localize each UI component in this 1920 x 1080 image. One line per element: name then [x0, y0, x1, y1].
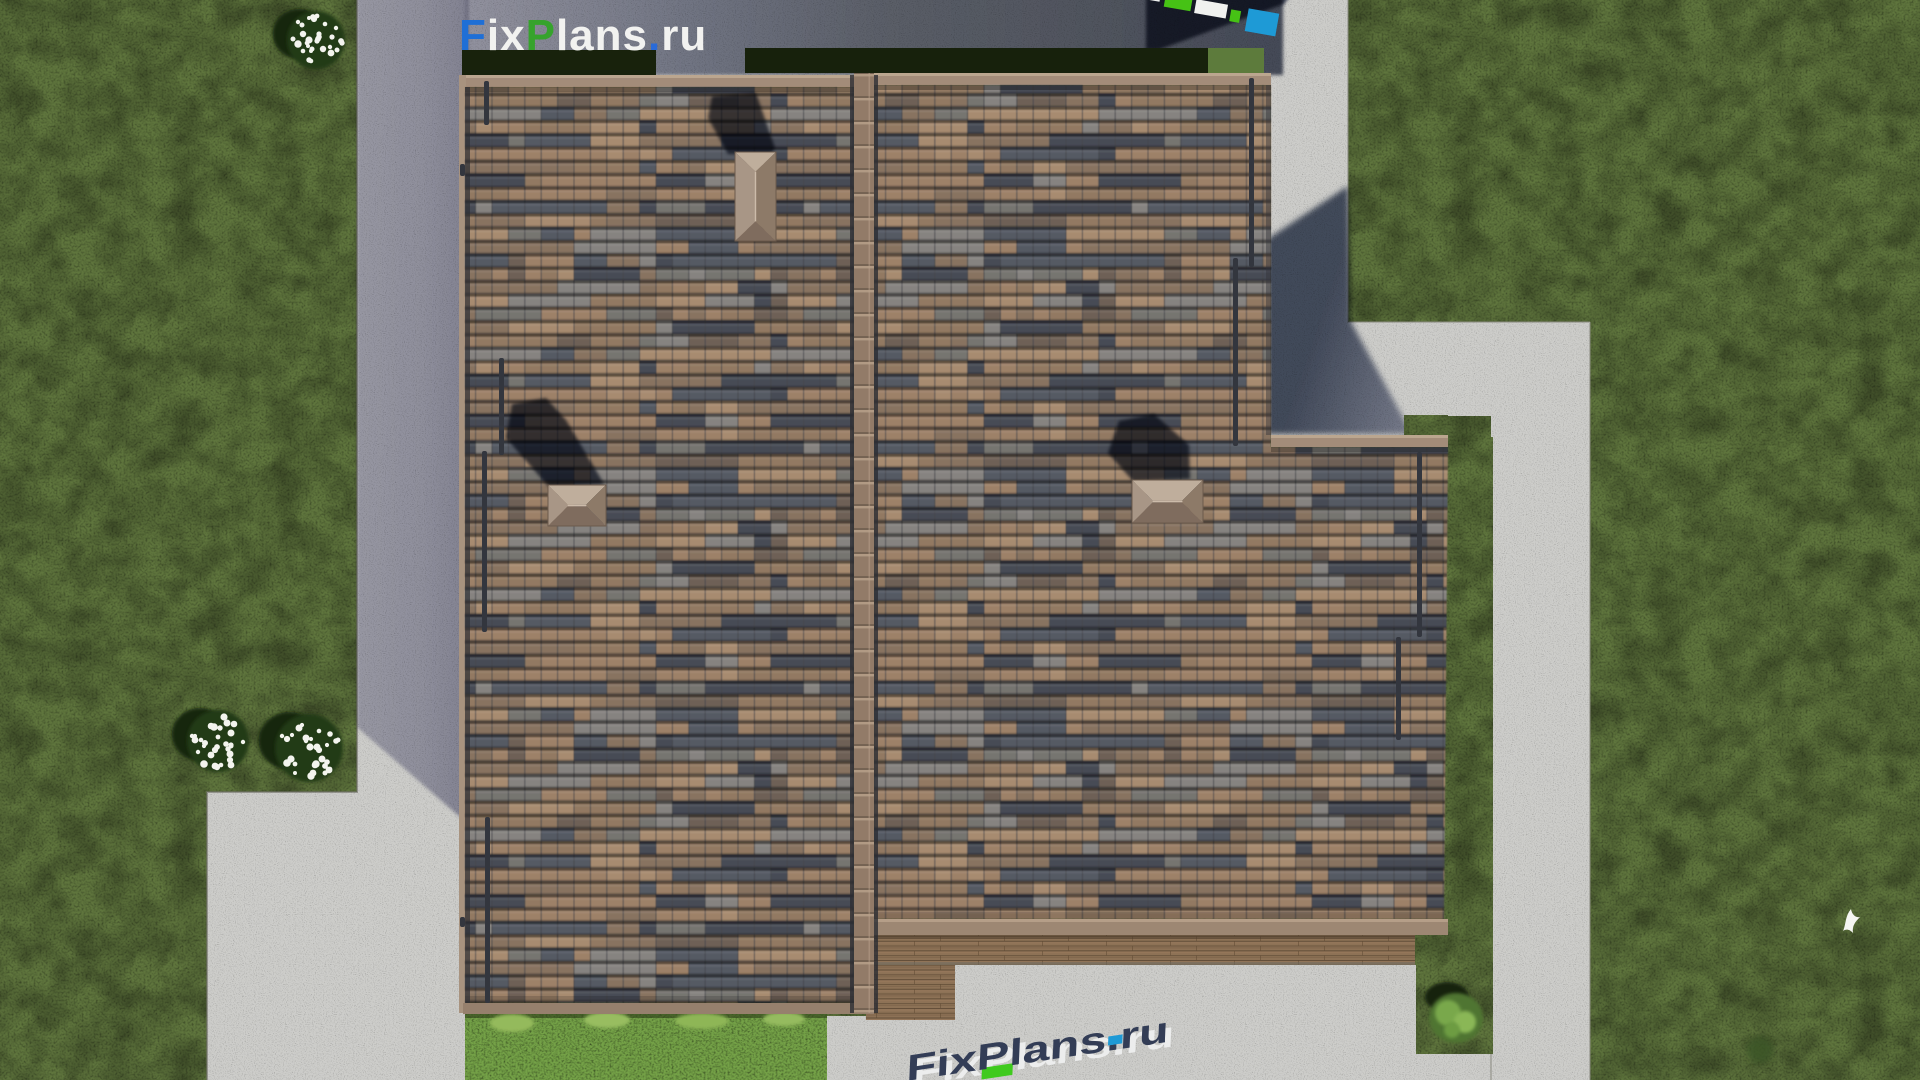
svg-text:FixPlans.ru: FixPlans.ru	[459, 11, 707, 60]
